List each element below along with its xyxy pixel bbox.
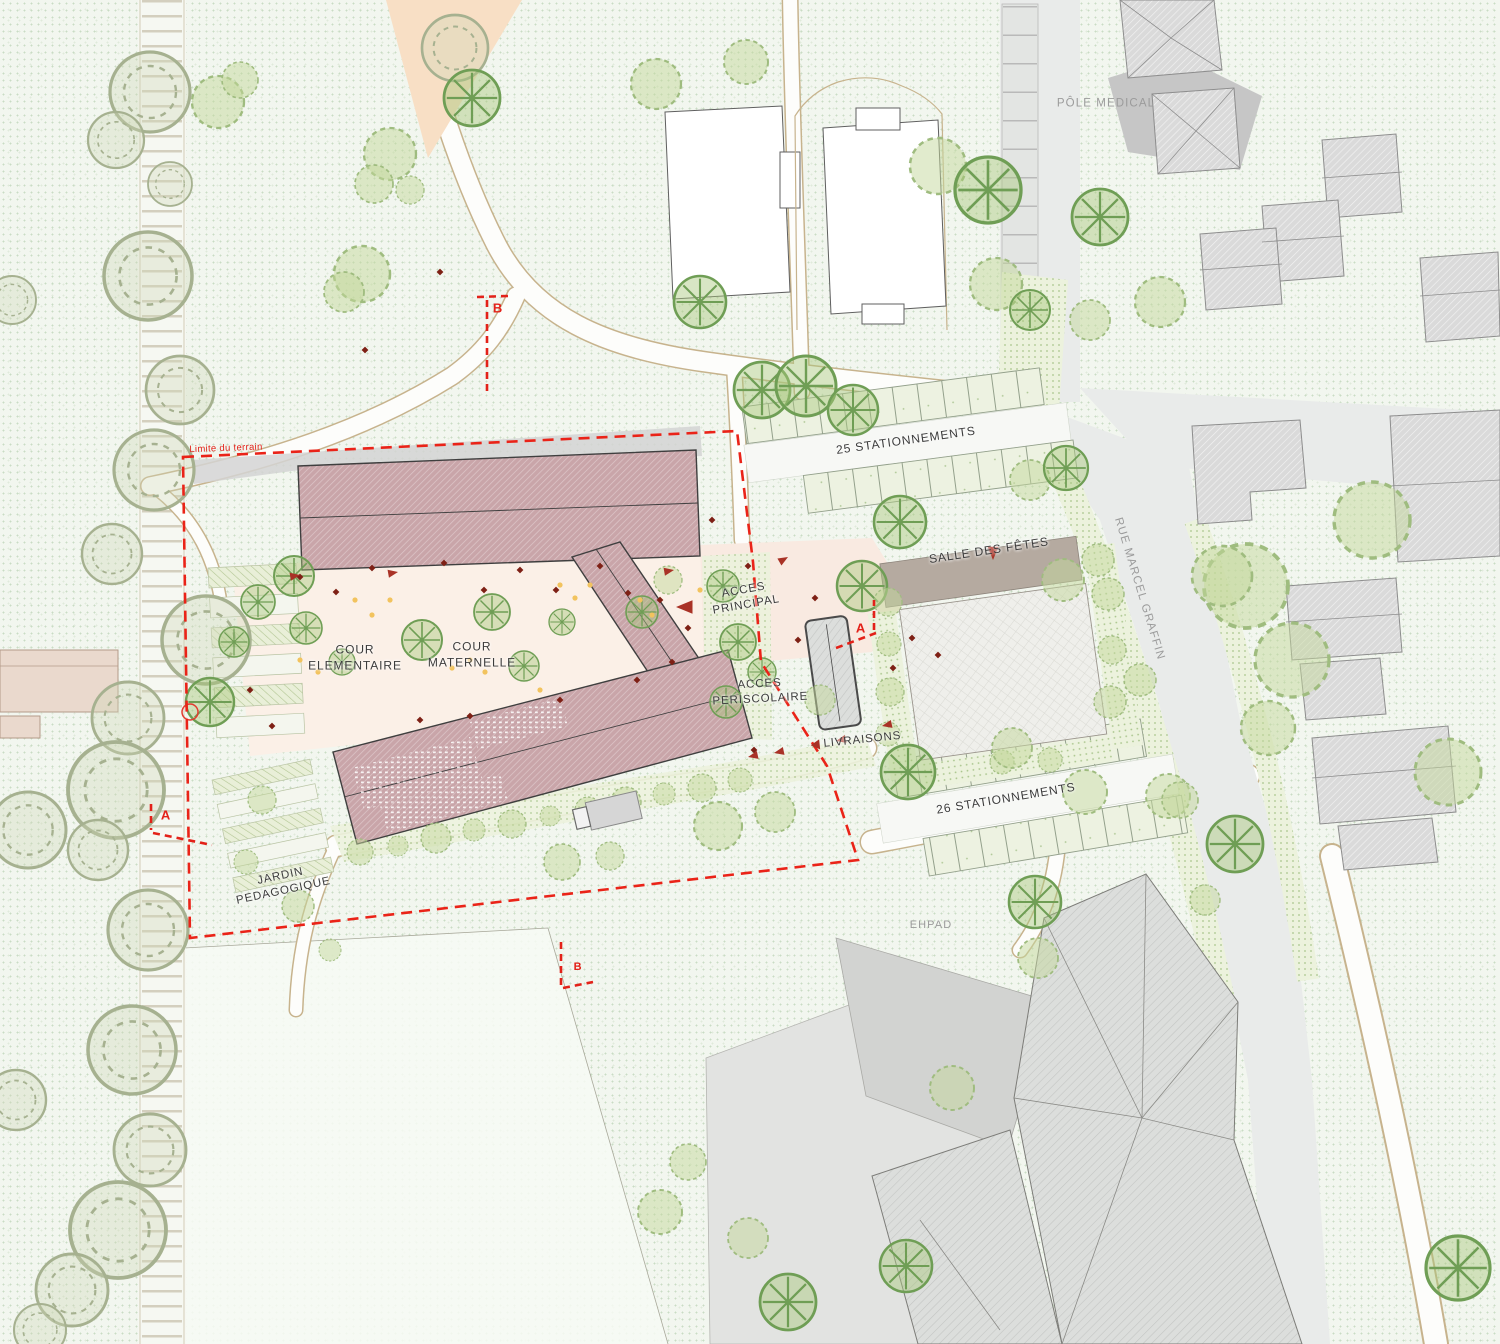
section-marker-b-bottom: B (574, 960, 583, 974)
label-limite-terrain: Limite du terrain (189, 442, 263, 457)
section-marker-a-right: A (856, 621, 866, 638)
school-building-north (298, 450, 700, 570)
section-marker-b-top: B (493, 301, 503, 318)
site-plan-drawing (0, 0, 1500, 1344)
label-ehpad: EHPAD (910, 918, 953, 932)
livraisons-arrow-icon (810, 739, 820, 750)
site-plan: PÔLE MEDICAL 25 STATIONNEMENTS SALLE DES… (0, 0, 1500, 1344)
label-cour-elementaire: COUR ELEMENTAIRE (308, 642, 402, 673)
section-marker-a-left: A (161, 808, 171, 825)
label-pole-medical: PÔLE MEDICAL (1057, 97, 1155, 112)
field-south-west (184, 928, 668, 1344)
label-acces-periscolaire: ACCES PERISCOLAIRE (711, 675, 808, 710)
label-cour-maternelle: COUR MATERNELLE (428, 639, 516, 670)
